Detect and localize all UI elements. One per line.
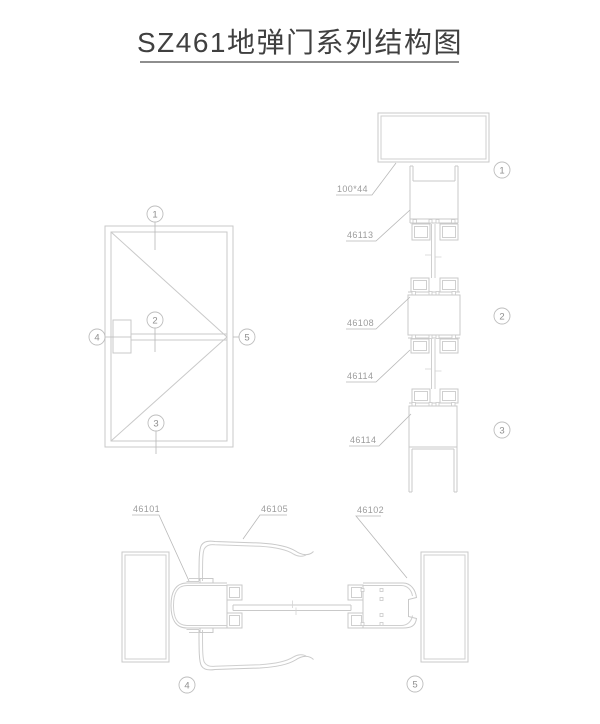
horizontal-section-labels: 46101 46105 46102 [132,504,407,581]
top-rail-profile-46113 [410,166,458,240]
callout-3-number: 3 [153,419,158,430]
section-callout-1-number: 1 [499,166,504,177]
horizontal-section-view: 46101 46105 46102 4 5 [122,504,468,693]
part-label-46114-upper: 46114 [347,371,373,381]
dimension-label-100x44: 100*44 [337,184,368,194]
mid-rail-profile-46108 [408,278,460,353]
left-wall-tube-inner [125,555,166,659]
bottom-rail-profile-46114 [409,389,458,492]
part-label-46105: 46105 [261,504,288,514]
drawing-title-block: SZ461地弹门系列结构图 [137,27,463,62]
vertical-section-labels: 100*44 46113 46108 46114 46114 [336,163,411,446]
section-callout-3-number: 3 [499,426,504,437]
glass-pane-lower [425,339,442,389]
page-title: SZ461地弹门系列结构图 [137,27,463,58]
right-wall-tube-outer [421,552,468,662]
section-callout-4-number: 4 [184,681,189,692]
cover-profile-46105-top [187,541,314,581]
drawing-page: SZ461地弹门系列结构图 1 2 3 4 5 [0,0,600,724]
door-elevation-view: 1 2 3 4 5 [89,206,255,454]
callout-1-number: 1 [152,210,157,221]
part-label-46102: 46102 [357,505,384,515]
frame-tube-inner [381,116,486,159]
horizontal-section-callouts: 4 5 [179,676,423,693]
door-swing-diagonal-top [111,232,227,337]
callout-2-number: 2 [152,316,157,327]
section-callout-2-number: 2 [499,312,504,323]
right-wall-tube-inner [424,555,465,659]
callout-4-number: 4 [94,333,99,344]
section-callout-5-number: 5 [412,680,417,691]
door-frame-inner [111,232,227,441]
left-wall-tube-outer [122,552,169,662]
glass-pane-plan [233,601,351,616]
cover-profile-46105-bottom [187,630,314,670]
lock-box [113,320,131,353]
part-label-46108: 46108 [347,318,374,328]
callout-5-number: 5 [244,333,249,344]
vertical-section-callouts: 1 2 3 [494,162,510,438]
frame-tube-outer [378,113,489,162]
part-label-46101: 46101 [133,504,160,514]
part-label-46114-lower: 46114 [350,435,376,445]
vertical-section-view: 100*44 46113 46108 46114 46114 1 2 3 [336,113,510,492]
door-frame-outer [105,226,233,447]
part-label-46113: 46113 [347,230,373,240]
structure-drawing: SZ461地弹门系列结构图 1 2 3 4 5 [0,0,600,724]
